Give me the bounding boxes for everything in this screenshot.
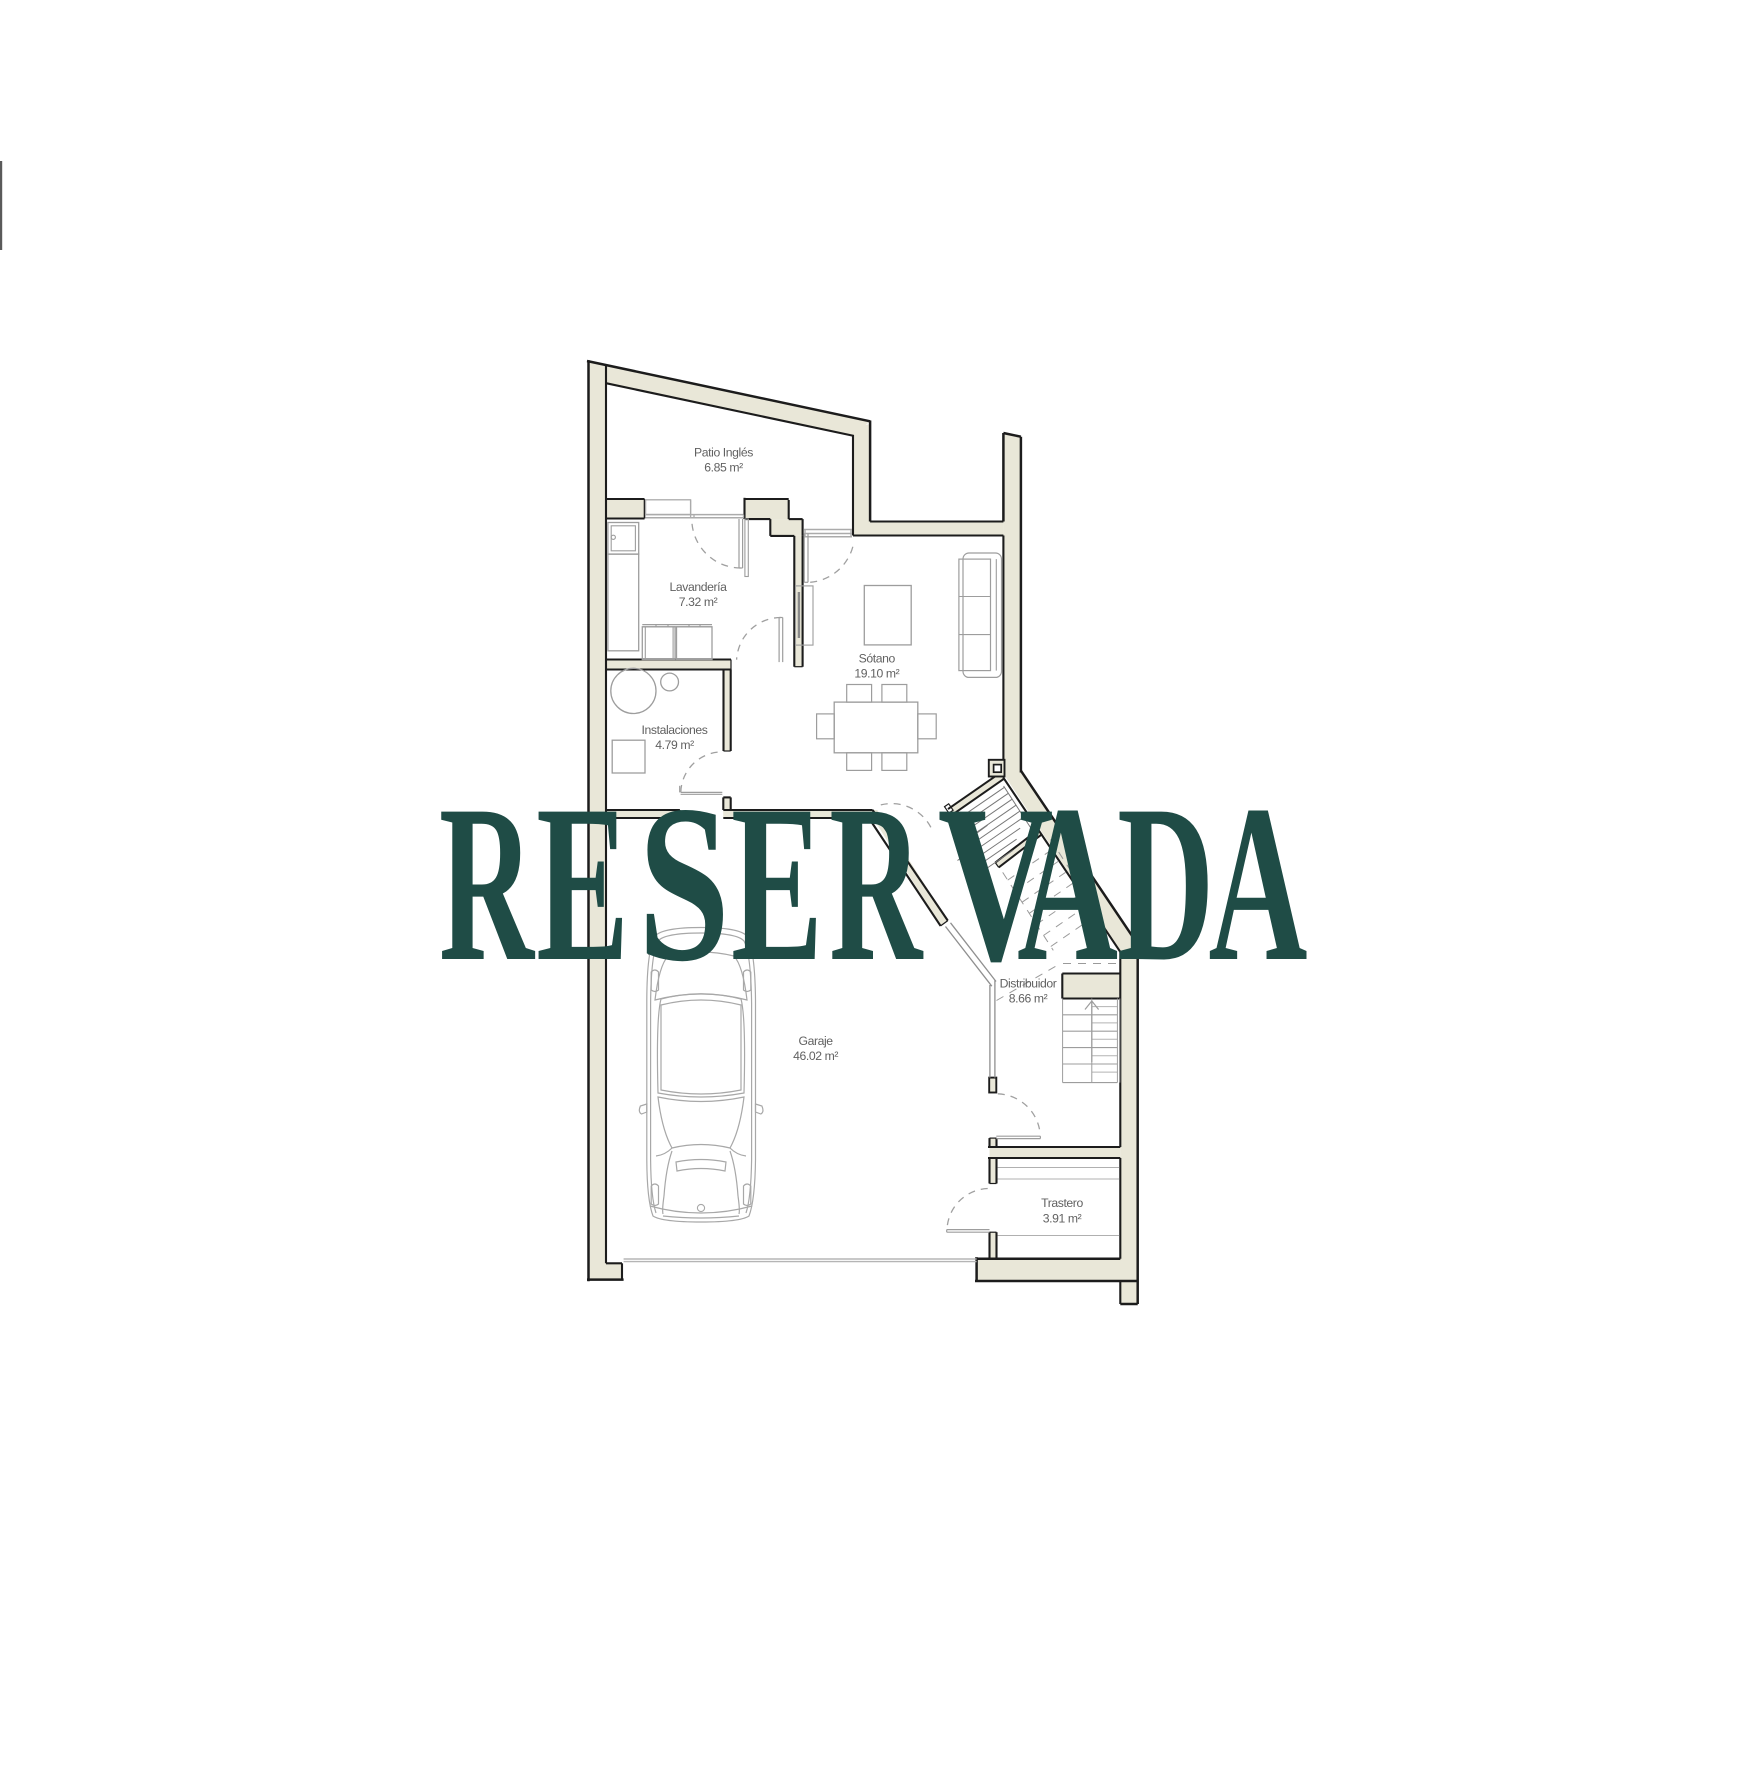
svg-text:Trastero: Trastero — [1041, 1196, 1083, 1210]
svg-text:46.02 m²: 46.02 m² — [793, 1049, 838, 1063]
svg-text:E: E — [536, 758, 629, 1008]
svg-text:Garaje: Garaje — [799, 1034, 834, 1048]
svg-text:A: A — [1017, 758, 1118, 1008]
svg-text:Sótano: Sótano — [859, 652, 896, 666]
svg-text:7.32 m²: 7.32 m² — [679, 595, 718, 609]
svg-text:4.79 m²: 4.79 m² — [655, 738, 694, 752]
svg-text:A: A — [1209, 758, 1308, 1008]
svg-text:R: R — [439, 758, 535, 1008]
svg-text:3.91 m²: 3.91 m² — [1043, 1212, 1082, 1226]
svg-text:19.10 m²: 19.10 m² — [854, 667, 899, 681]
svg-text:Instalaciones: Instalaciones — [642, 723, 708, 737]
svg-text:D: D — [1117, 758, 1214, 1008]
svg-text:6.85 m²: 6.85 m² — [704, 461, 743, 475]
svg-text:R: R — [829, 758, 923, 1008]
svg-text:Patio Inglés: Patio Inglés — [694, 446, 753, 460]
svg-text:S: S — [638, 758, 730, 1008]
svg-text:E: E — [731, 758, 823, 1008]
svg-text:Lavandería: Lavandería — [670, 580, 728, 594]
